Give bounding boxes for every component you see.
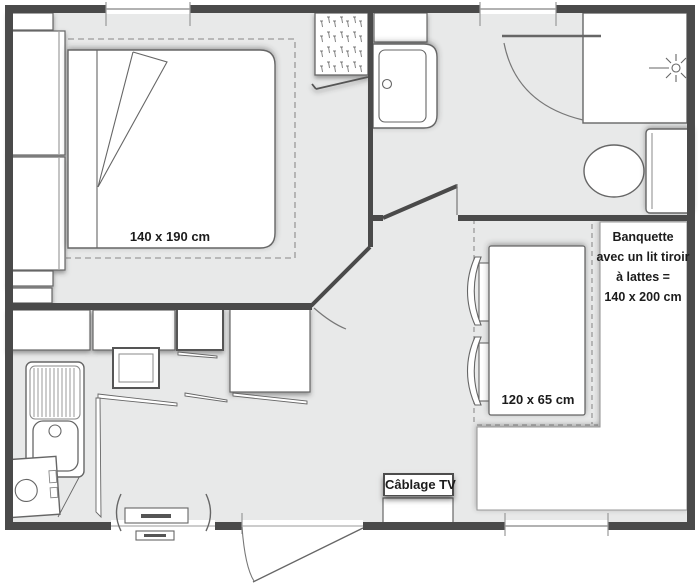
tv-cabling-label: Câblage TV — [383, 473, 454, 496]
chair — [468, 257, 491, 325]
hob — [113, 348, 159, 388]
banquette-label-line1: Banquette — [612, 230, 673, 244]
dining-table — [489, 246, 585, 415]
wardrobe-column — [8, 13, 65, 303]
banquette-label-line4: 140 x 200 cm — [604, 290, 681, 304]
oven — [177, 308, 223, 350]
tv-cabling-box — [383, 498, 453, 525]
bedroom-kitchen-wall — [8, 303, 312, 310]
fridge — [6, 456, 60, 517]
banquette-label-line2: avec un lit tiroir — [596, 250, 689, 264]
floorplan-canvas — [0, 0, 700, 584]
double-bed — [68, 50, 275, 248]
washbasin — [373, 44, 437, 128]
shower — [583, 13, 687, 123]
bedroom-bathroom-wall — [368, 13, 373, 247]
table-dimensions-label: 120 x 65 cm — [486, 392, 590, 407]
corner-cabinet — [230, 308, 310, 392]
bathroom-dining-wall — [458, 215, 695, 221]
entry-door — [242, 513, 363, 582]
bathroom-cabinet — [374, 13, 427, 42]
floorplan: 140 x 190 cm 120 x 65 cm Banquette avec … — [0, 0, 700, 584]
banquette-label-line3: à lattes = — [616, 270, 670, 284]
bed-dimensions-label: 140 x 190 cm — [110, 229, 230, 244]
banquette-label: Banquette avec un lit tiroir à lattes = … — [596, 227, 690, 307]
